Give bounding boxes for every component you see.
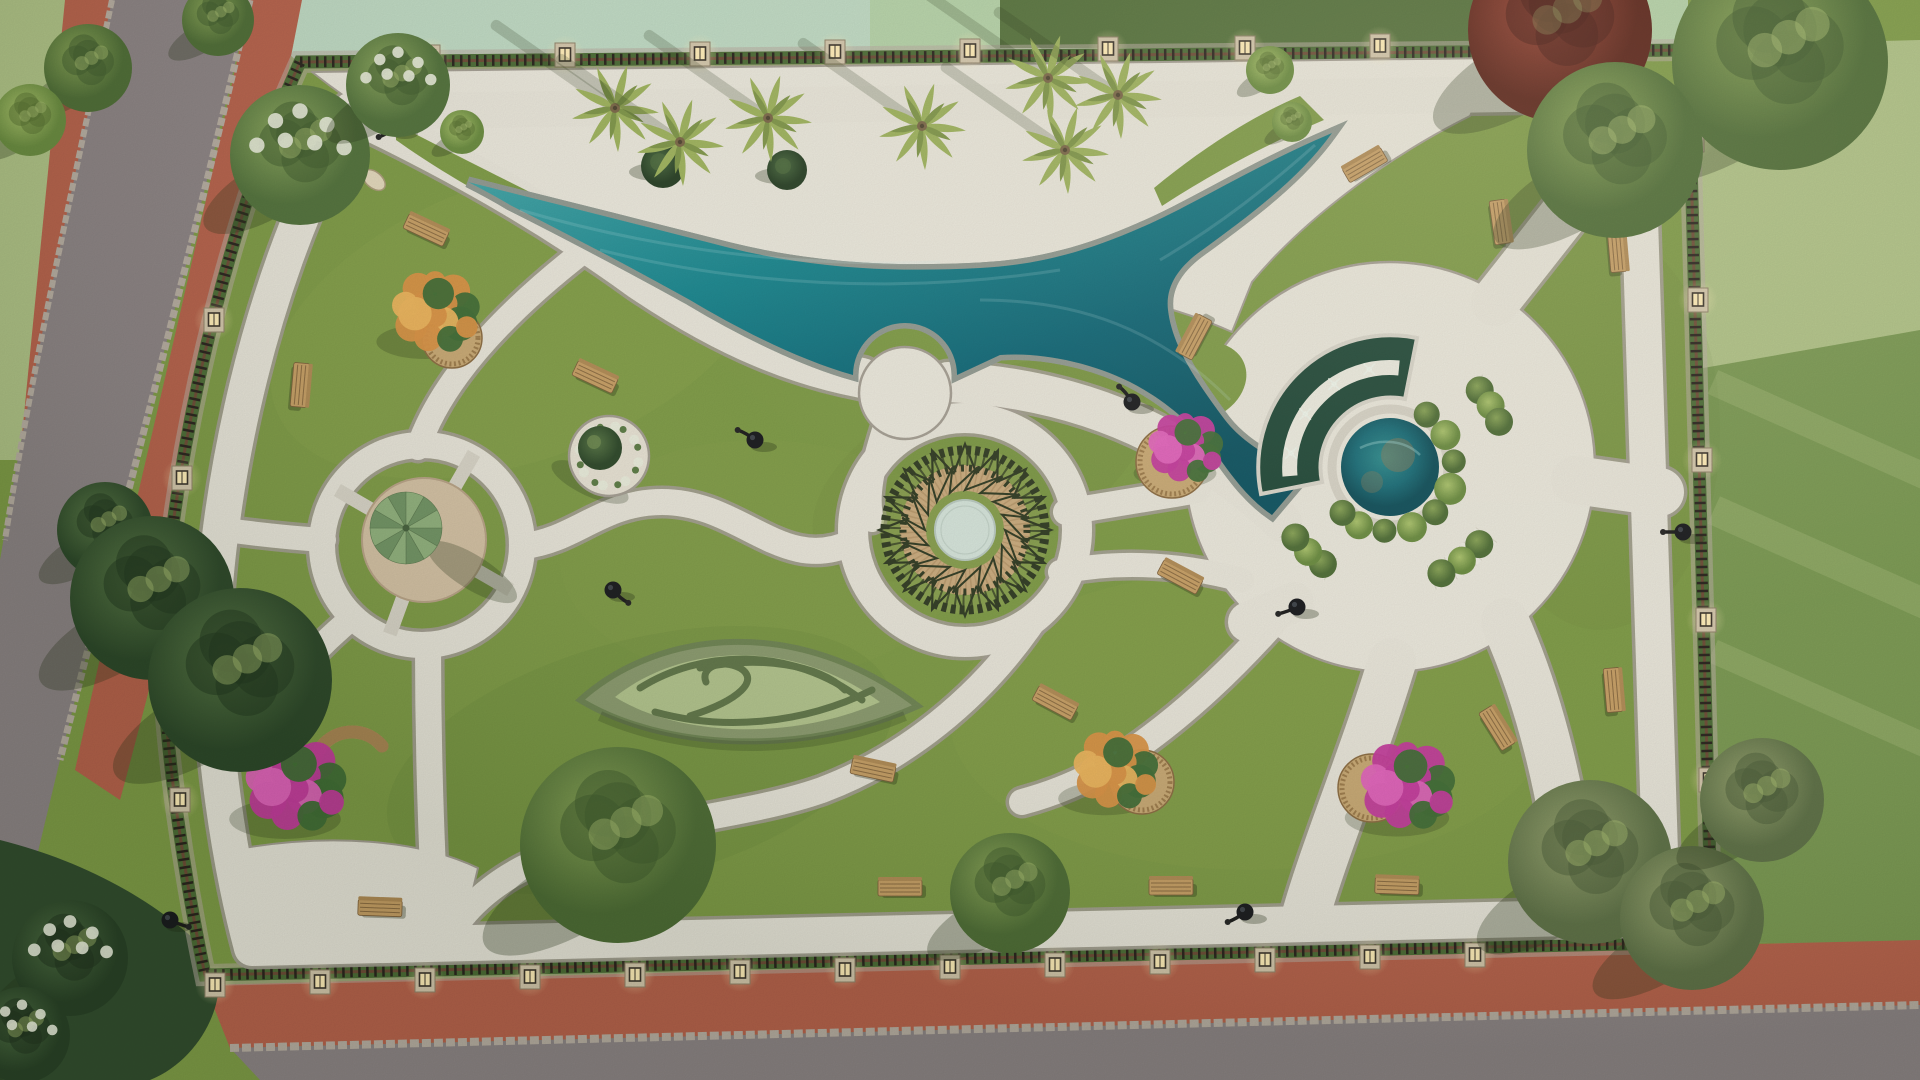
- park-aerial-render: Aerial top-down 3D render of a rectangul…: [0, 0, 1920, 1080]
- grain-overlay: [0, 0, 1920, 1080]
- park-scene: [0, 0, 1920, 1080]
